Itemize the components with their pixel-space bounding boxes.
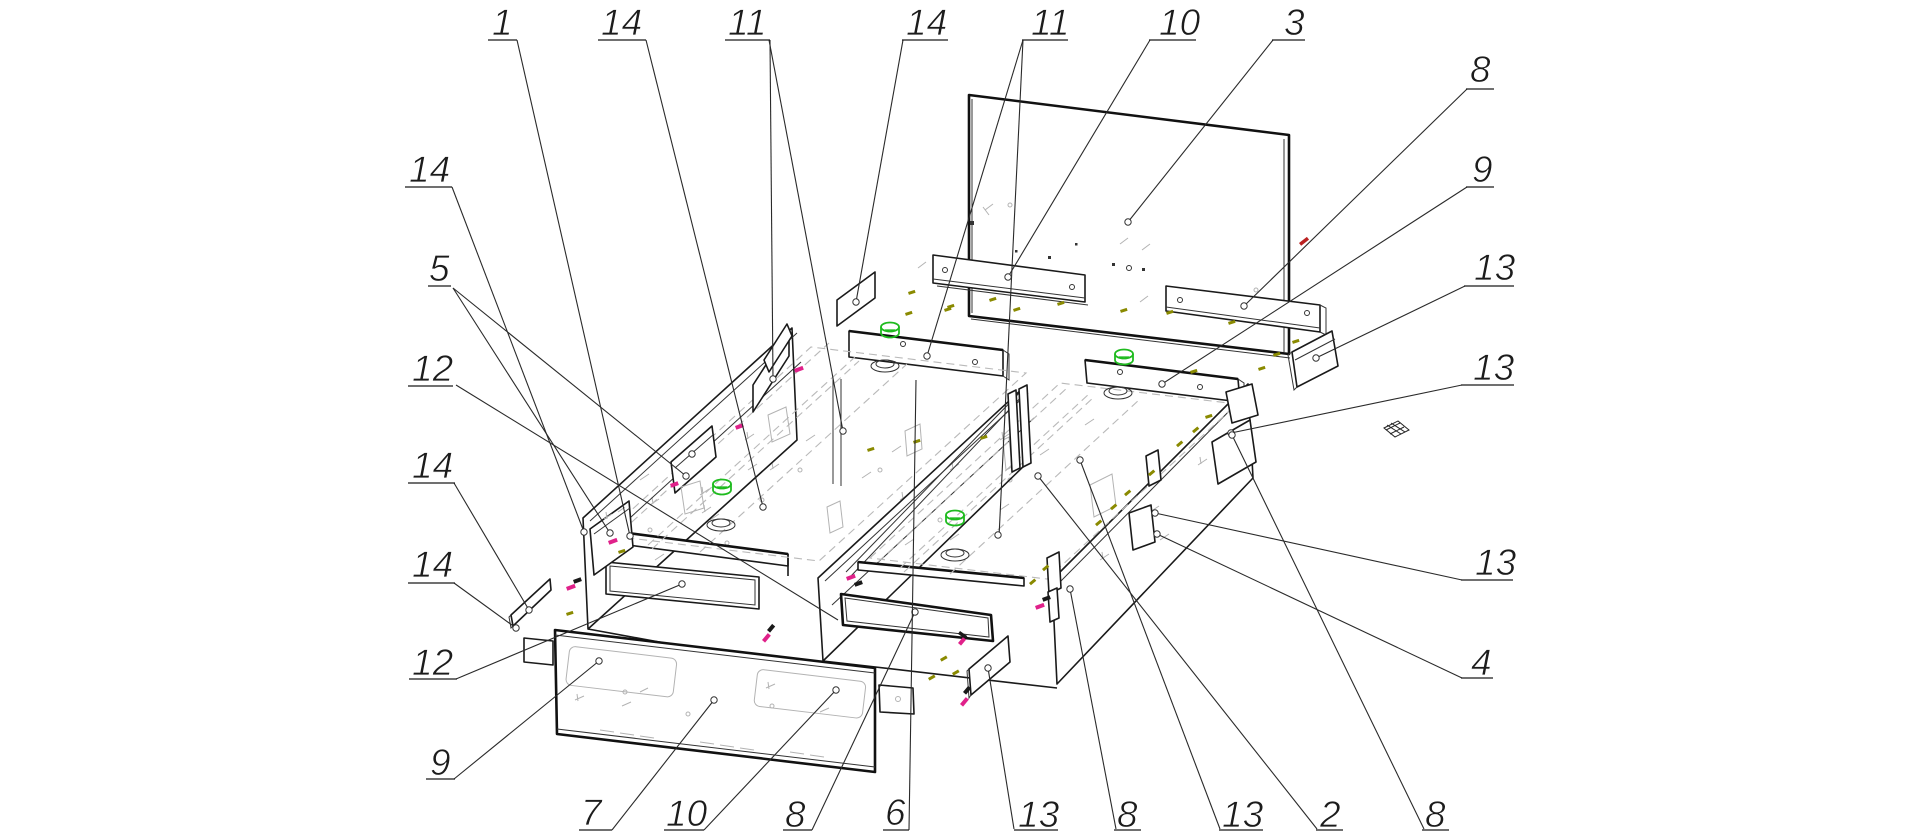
svg-text:10: 10 xyxy=(666,793,708,834)
svg-text:5: 5 xyxy=(429,248,450,289)
svg-text:6: 6 xyxy=(885,792,906,833)
svg-text:8: 8 xyxy=(785,794,806,835)
svg-text:9: 9 xyxy=(1472,149,1493,190)
svg-text:12: 12 xyxy=(412,348,454,389)
svg-text:14: 14 xyxy=(412,445,453,486)
svg-text:10: 10 xyxy=(1159,2,1201,43)
svg-text:13: 13 xyxy=(1475,542,1517,583)
svg-text:12: 12 xyxy=(412,642,454,683)
svg-text:14: 14 xyxy=(906,2,947,43)
svg-text:11: 11 xyxy=(1031,2,1069,43)
svg-text:13: 13 xyxy=(1474,247,1516,288)
svg-text:4: 4 xyxy=(1471,642,1492,683)
svg-text:13: 13 xyxy=(1222,794,1264,835)
svg-text:11: 11 xyxy=(728,2,766,43)
svg-text:9: 9 xyxy=(430,742,451,783)
svg-text:2: 2 xyxy=(1319,794,1341,835)
svg-text:8: 8 xyxy=(1470,49,1491,90)
svg-text:13: 13 xyxy=(1018,794,1060,835)
svg-text:13: 13 xyxy=(1473,347,1515,388)
svg-text:14: 14 xyxy=(601,2,642,43)
svg-text:7: 7 xyxy=(581,792,603,833)
svg-text:8: 8 xyxy=(1117,794,1138,835)
svg-text:14: 14 xyxy=(409,149,450,190)
svg-text:8: 8 xyxy=(1425,794,1446,835)
svg-text:1: 1 xyxy=(492,2,513,43)
svg-text:14: 14 xyxy=(412,544,453,585)
svg-text:3: 3 xyxy=(1284,2,1305,43)
